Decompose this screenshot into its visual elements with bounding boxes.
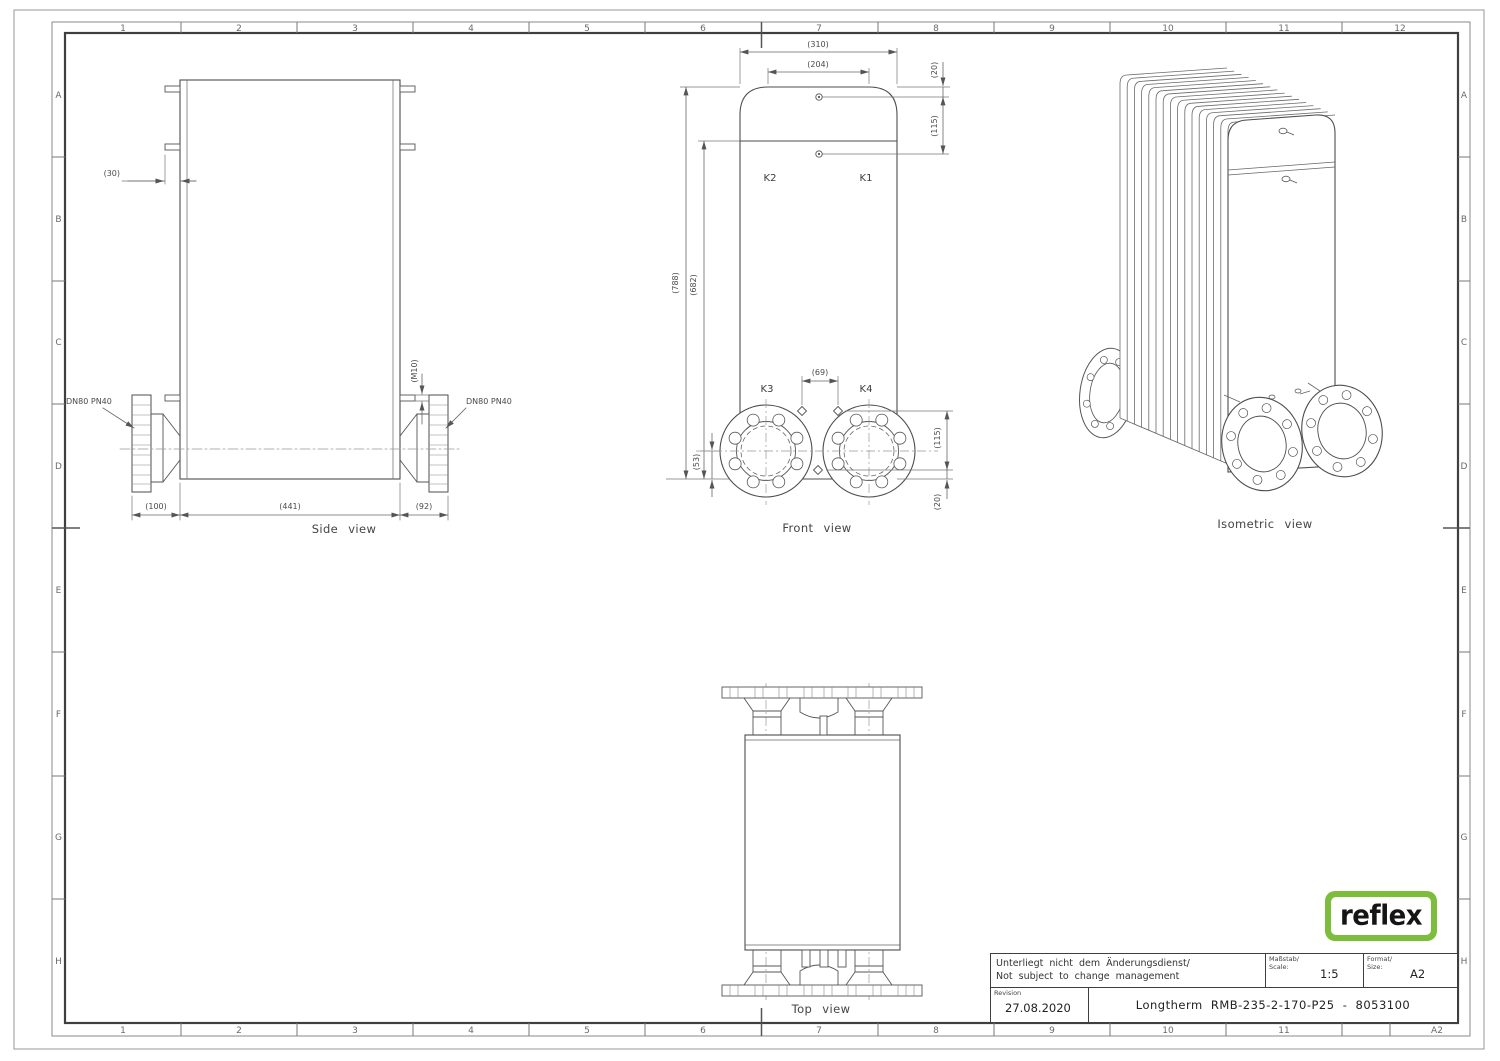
- change-note: Unterliegt nicht dem Änderungsdienst/ No…: [991, 954, 1266, 987]
- grid-right-f: F: [1461, 710, 1466, 720]
- top-view: Top view: [722, 683, 922, 1016]
- dim-30: (30): [104, 169, 120, 178]
- dim-441: (441): [279, 502, 301, 511]
- port-k1: K1: [860, 173, 873, 184]
- grid-bottom-11: 11: [1278, 1026, 1289, 1036]
- grid-left-e: E: [56, 586, 62, 596]
- dim-flange-left: DN80 PN40: [66, 397, 112, 406]
- dim-788: (788): [671, 272, 680, 294]
- drawing-sheet: 1 2 3 4 5 6 7 8 9 10 11 12 1 2 3 4 5 6 7…: [0, 0, 1500, 1061]
- reflex-logo-frame: reflex: [1331, 897, 1431, 935]
- drawing-canvas: 1 2 3 4 5 6 7 8 9 10 11 12 1 2 3 4 5 6 7…: [0, 0, 1500, 1061]
- change-note-en: Not subject to change management: [996, 970, 1260, 983]
- grid-right-d: D: [1461, 462, 1468, 472]
- grid-top-4: 4: [468, 24, 474, 34]
- side-view: DN80 PN40 DN80 PN40 (30) (M10) (100) (44…: [66, 80, 512, 536]
- grid-bottom-9: 9: [1049, 1026, 1055, 1036]
- grid-top-5: 5: [584, 24, 590, 34]
- grid-right-a: A: [1461, 91, 1468, 101]
- port-k4: K4: [860, 384, 873, 395]
- grid-bottom-7: 7: [816, 1026, 822, 1036]
- drawing-title-cell: Longtherm RMB-235-2-170-P25 - 8053100: [1089, 988, 1457, 1023]
- front-view-title: Front view: [782, 521, 851, 535]
- grid-top-2: 2: [236, 24, 242, 34]
- dim-115-top: (115): [930, 115, 939, 137]
- sheet-format-mark: A2: [1431, 1026, 1443, 1036]
- drawing-title: Longtherm RMB-235-2-170-P25 - 8053100: [1136, 998, 1410, 1012]
- grid-bottom-5: 5: [584, 1026, 590, 1036]
- revision-label: Revision: [994, 990, 1021, 998]
- dim-204: (204): [807, 60, 829, 69]
- isometric-view: Isometric view: [1074, 68, 1391, 531]
- grid-left-d: D: [55, 462, 62, 472]
- format-label-en: Size:: [1367, 964, 1392, 972]
- grid-top-1: 1: [120, 24, 126, 34]
- scale-cell: Maßstab/ Scale: 1:5: [1266, 954, 1364, 987]
- grid-left-h: H: [55, 957, 62, 967]
- grid-bottom-1: 1: [120, 1026, 126, 1036]
- dim-310: (310): [807, 40, 829, 49]
- grid-bottom-8: 8: [933, 1026, 939, 1036]
- dim-53: (53): [692, 454, 701, 470]
- grid-bottom-4: 4: [468, 1026, 474, 1036]
- dim-115-bottom: (115): [933, 427, 942, 449]
- grid-right-e: E: [1461, 586, 1467, 596]
- grid-top-6: 6: [700, 24, 706, 34]
- isometric-view-title: Isometric view: [1217, 517, 1312, 531]
- grid-bottom-6: 6: [700, 1026, 706, 1036]
- grid-bottom-2: 2: [236, 1026, 242, 1036]
- dim-92: (92): [416, 502, 432, 511]
- format-value: A2: [1410, 967, 1425, 981]
- grid-top-12: 12: [1394, 24, 1405, 34]
- grid-top-3: 3: [352, 24, 358, 34]
- grid-left-g: G: [55, 833, 62, 843]
- grid-top-8: 8: [933, 24, 939, 34]
- dim-69: (69): [812, 368, 828, 377]
- change-note-de: Unterliegt nicht dem Änderungsdienst/: [996, 957, 1260, 970]
- grid-right-g: G: [1461, 833, 1468, 843]
- grid-top-10: 10: [1162, 24, 1174, 34]
- reflex-logo: reflex: [1325, 891, 1437, 941]
- grid-right-h: H: [1461, 957, 1468, 967]
- grid-left-a: A: [55, 91, 62, 101]
- reflex-logo-text: reflex: [1340, 900, 1422, 932]
- grid-left-f: F: [56, 710, 61, 720]
- grid-bottom-3: 3: [352, 1026, 358, 1036]
- front-view: (310) (204) (20) (115) (788) (682) (53) …: [666, 40, 953, 535]
- dim-m10: (M10): [410, 359, 419, 382]
- dim-flange-right: DN80 PN40: [466, 397, 512, 406]
- scale-label-en: Scale:: [1269, 964, 1299, 972]
- revision-value: 27.08.2020: [1005, 1001, 1071, 1015]
- revision-cell: Revision 27.08.2020: [991, 988, 1089, 1023]
- grid-left-c: C: [55, 338, 61, 348]
- grid-left-b: B: [55, 215, 61, 225]
- grid-right-b: B: [1461, 215, 1467, 225]
- format-cell: Format/ Size: A2: [1364, 954, 1457, 987]
- dim-682: (682): [689, 274, 698, 296]
- top-view-title: Top view: [791, 1002, 851, 1016]
- side-view-title: Side view: [312, 522, 377, 536]
- dim-20-bottom: (20): [933, 494, 942, 510]
- port-k2: K2: [764, 173, 777, 184]
- grid-top-11: 11: [1278, 24, 1289, 34]
- title-block: Unterliegt nicht dem Änderungsdienst/ No…: [990, 953, 1458, 1023]
- grid-right-c: C: [1461, 338, 1467, 348]
- grid-top-7: 7: [816, 24, 822, 34]
- port-k3: K3: [761, 384, 774, 395]
- grid-top-9: 9: [1049, 24, 1055, 34]
- dim-100: (100): [145, 502, 167, 511]
- dim-20-top: (20): [930, 62, 939, 78]
- grid-bottom-10: 10: [1162, 1026, 1174, 1036]
- scale-value: 1:5: [1320, 967, 1339, 981]
